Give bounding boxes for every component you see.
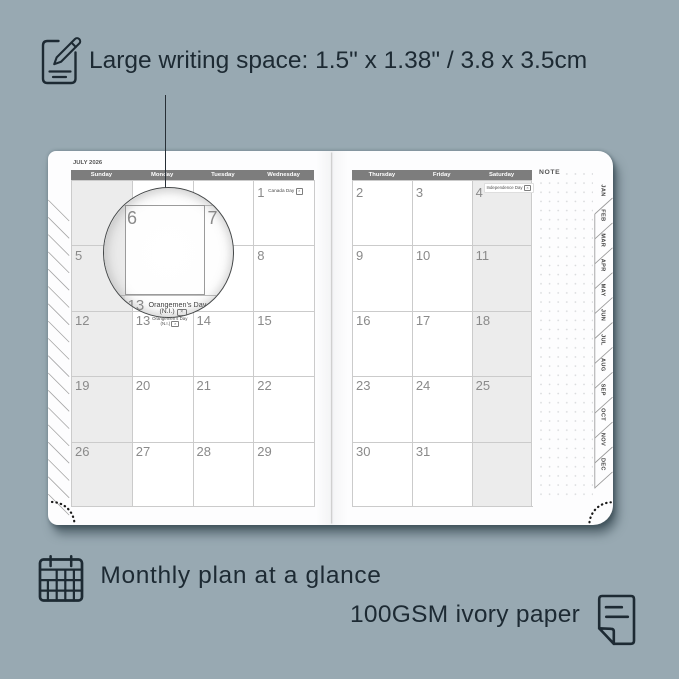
svg-text:NOV: NOV <box>599 433 605 446</box>
svg-text:SEP: SEP <box>599 384 605 396</box>
svg-text:APR: APR <box>599 259 605 272</box>
svg-text:JUL: JUL <box>599 334 605 346</box>
svg-text:FEB: FEB <box>599 209 605 221</box>
svg-text:JUN: JUN <box>599 309 605 321</box>
svg-text:JAN: JAN <box>599 184 605 196</box>
svg-text:OCT: OCT <box>599 408 605 421</box>
svg-text:MAY: MAY <box>599 284 605 297</box>
svg-text:MAR: MAR <box>599 233 605 247</box>
svg-text:DEC: DEC <box>599 458 605 471</box>
svg-text:AUG: AUG <box>599 358 605 371</box>
